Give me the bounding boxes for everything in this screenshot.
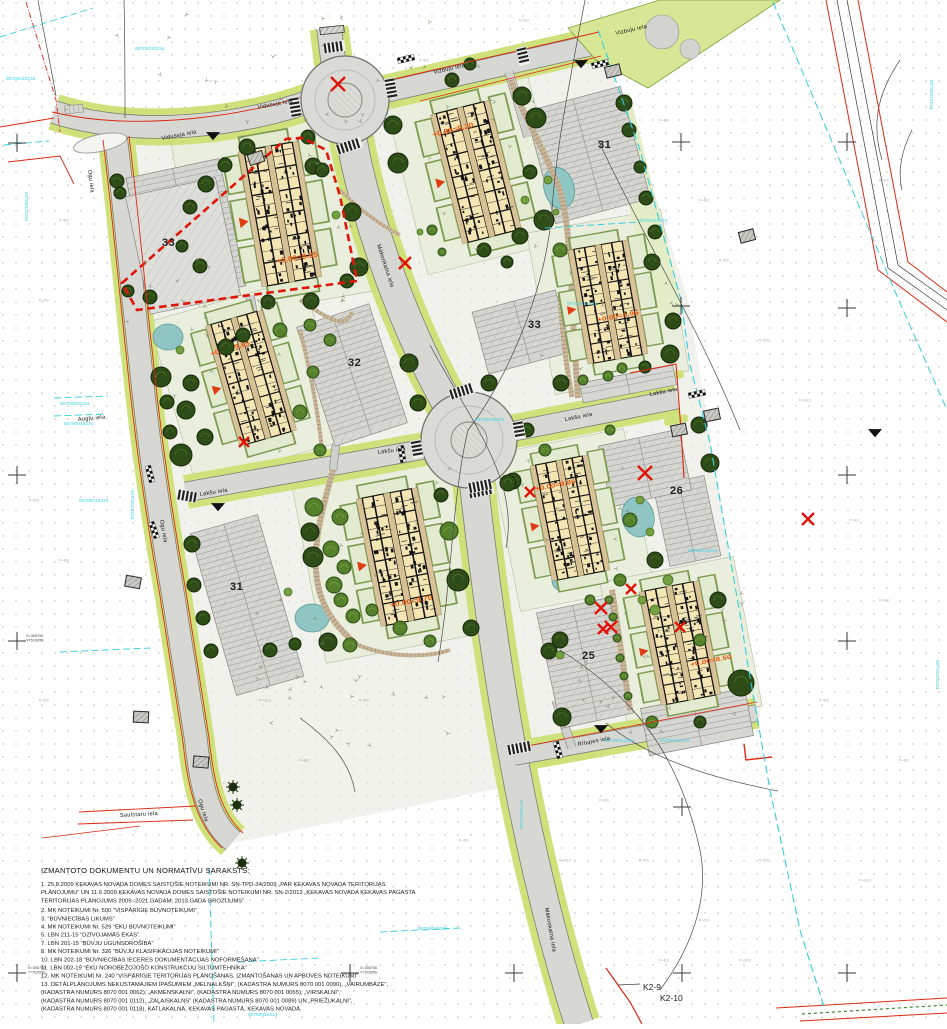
- svg-text:+10.0: +10.0: [742, 959, 751, 963]
- svg-text:+10.0: +10.0: [562, 859, 571, 863]
- svg-text:80700010234: 80700010234: [934, 660, 940, 690]
- svg-text:3. “BŪVNIECĪBAS LIKUMS”: 3. “BŪVNIECĪBAS LIKUMS”: [41, 915, 115, 922]
- svg-text:7. LBN 201-15 “BŪVJU UGUNSDROŠ: 7. LBN 201-15 “BŪVJU UGUNSDROŠĪBA”: [41, 940, 153, 947]
- svg-text:80700010234: 80700010234: [928, 80, 934, 110]
- svg-text:80700010234: 80700010234: [23, 192, 29, 222]
- svg-text:+9.0: +9.0: [522, 19, 529, 23]
- svg-text:13. DETĀLPLĀNOJUMS NEKUSTAMAJI: 13. DETĀLPLĀNOJUMS NEKUSTAMAJIEM ĪPAŠUMI…: [41, 981, 388, 988]
- svg-text:+9.0: +9.0: [822, 699, 829, 703]
- svg-text:+9.0: +9.0: [702, 199, 709, 203]
- svg-text:+9.0: +9.0: [762, 339, 769, 343]
- svg-text:80700010234: 80700010234: [418, 926, 448, 932]
- svg-text:+9.0: +9.0: [702, 919, 709, 923]
- svg-text:11. LBN 002-19 “ĒKU NOROBEŽOJO: 11. LBN 002-19 “ĒKU NOROBEŽOJOŠO KONSTRU…: [41, 964, 247, 972]
- svg-text:32: 32: [348, 357, 361, 369]
- svg-text:5. LBN 211-15 “DZĪVOJAMĀS ĒKAS: 5. LBN 211-15 “DZĪVOJAMĀS ĒKAS”.: [41, 932, 141, 939]
- svg-text:+8.0: +8.0: [62, 559, 69, 563]
- svg-text:+9.0: +9.0: [852, 519, 859, 523]
- svg-text:+9.0: +9.0: [762, 859, 769, 863]
- svg-text:(KADASTRA NUMURS 8070 001 0112: (KADASTRA NUMURS 8070 001 0112), „ZAĻAIS…: [41, 996, 353, 1004]
- svg-text:+8.0: +8.0: [602, 799, 609, 803]
- svg-text:+9.0: +9.0: [42, 299, 49, 303]
- svg-text:+9.0: +9.0: [882, 179, 889, 183]
- svg-text:80700010234: 80700010234: [475, 417, 505, 423]
- svg-text:25: 25: [582, 650, 595, 662]
- svg-text:PLĀNOJUMU” UN 11.6.2009.ĶEKAVA: PLĀNOJUMU” UN 11.6.2009.ĶEKAVAS NOVADA D…: [41, 889, 416, 896]
- svg-text:+8.0: +8.0: [32, 499, 39, 503]
- svg-text:+8.0: +8.0: [62, 219, 69, 223]
- svg-text:12. MK NOTEIKUMI Nr. 240 “VISP: 12. MK NOTEIKUMI Nr. 240 “VISPĀRĪGIE TER…: [41, 973, 358, 980]
- svg-text:+8.0: +8.0: [422, 59, 429, 63]
- svg-text:8. MK NOTEIKUMI Nr. 326 “BŪVJU: 8. MK NOTEIKUMI Nr. 326 “BŪVJU KLASIFIKĀ…: [41, 948, 219, 955]
- svg-text:Y=510050: Y=510050: [26, 639, 43, 643]
- svg-text:+8.0: +8.0: [302, 759, 309, 763]
- svg-text:+8.0: +8.0: [362, 699, 369, 703]
- svg-text:TERITORIJAS PLĀNOJUMS 2009.-20: TERITORIJAS PLĀNOJUMS 2009.-2021.GADAM, …: [41, 897, 244, 904]
- svg-text:+10.0: +10.0: [862, 879, 871, 883]
- svg-text:+9.0: +9.0: [462, 839, 469, 843]
- svg-text:+9.0: +9.0: [42, 699, 49, 703]
- svg-text:31: 31: [598, 139, 611, 151]
- svg-text:+8.0: +8.0: [902, 759, 909, 763]
- svg-text:+10.0: +10.0: [262, 699, 271, 703]
- svg-text:(KADASTRA NUMURS 8070 001 0062: (KADASTRA NUMURS 8070 001 0062), „AKMENS…: [41, 990, 341, 996]
- svg-text:X=305750: X=305750: [26, 634, 43, 638]
- svg-text:80700010234: 80700010234: [129, 490, 135, 520]
- svg-text:+9.0: +9.0: [912, 339, 919, 343]
- svg-text:+8.0: +8.0: [662, 959, 669, 963]
- svg-text:+10.0: +10.0: [802, 399, 811, 403]
- svg-text:Y=510050: Y=510050: [360, 971, 377, 975]
- svg-text:33: 33: [162, 237, 175, 249]
- svg-text:IZMANTOTO DOKUMENTU UN NORMATĪ: IZMANTOTO DOKUMENTU UN NORMATĪVU SARAKST…: [41, 866, 250, 875]
- svg-text:K2-10: K2-10: [660, 993, 683, 1003]
- svg-text:+8.0: +8.0: [722, 259, 729, 263]
- svg-text:2. MK NOTEIKUMI Nr. 500 “VISPĀ: 2. MK NOTEIKUMI Nr. 500 “VISPĀRĪGIE BŪVN…: [41, 907, 197, 914]
- svg-text:80700010234: 80700010234: [688, 548, 718, 554]
- svg-text:4. MK NOTEIKUMI Nr. 529 “ĒKU B: 4. MK NOTEIKUMI Nr. 529 “ĒKU BŪVNOTEIKUM…: [41, 924, 176, 931]
- svg-text:80700010234: 80700010234: [567, 301, 597, 307]
- svg-text:80700010234: 80700010234: [79, 498, 109, 504]
- svg-text:80700010234: 80700010234: [518, 800, 524, 830]
- svg-text:K2-9: K2-9: [643, 982, 661, 992]
- svg-text:10. LBN 202-18 “BŪVNIECĪBAS I: 10. LBN 202-18 “BŪVNIECĪBAS IECERES DOKU…: [41, 956, 259, 963]
- svg-text:80700010234: 80700010234: [248, 1012, 278, 1018]
- svg-text:(KADASTRA NUMURS 8070 001 0118: (KADASTRA NUMURS 8070 001 0118), KATLAKA…: [41, 1006, 302, 1013]
- svg-text:33: 33: [528, 319, 541, 331]
- svg-text:80700010234: 80700010234: [135, 46, 165, 52]
- svg-text:X=305750: X=305750: [360, 966, 377, 970]
- svg-text:+9.0: +9.0: [642, 859, 649, 863]
- svg-text:80700010234: 80700010234: [638, 218, 668, 224]
- svg-text:31: 31: [230, 581, 243, 593]
- svg-text:+9.0: +9.0: [882, 599, 889, 603]
- svg-text:1. 25.8.2009 ĶEKAVAS NOVADA DO: 1. 25.8.2009 ĶEKAVAS NOVADA DOMES SAISTO…: [41, 881, 386, 888]
- svg-text:+8.0: +8.0: [662, 119, 669, 123]
- svg-text:80700010234: 80700010234: [660, 738, 690, 744]
- svg-text:80700010234: 80700010234: [6, 76, 36, 82]
- svg-text:80700010234: 80700010234: [60, 401, 90, 407]
- svg-text:26: 26: [670, 485, 683, 497]
